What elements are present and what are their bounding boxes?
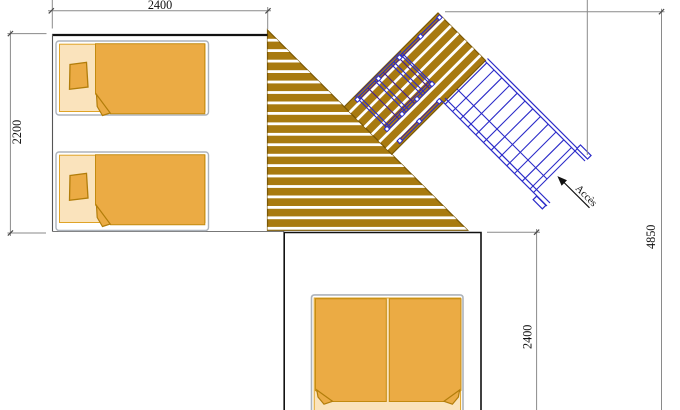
svg-text:Accès: Accès — [573, 183, 599, 209]
svg-text:2200: 2200 — [10, 120, 24, 144]
svg-text:2400: 2400 — [520, 325, 534, 349]
svg-text:4850: 4850 — [644, 225, 658, 249]
svg-text:2400: 2400 — [148, 0, 172, 12]
